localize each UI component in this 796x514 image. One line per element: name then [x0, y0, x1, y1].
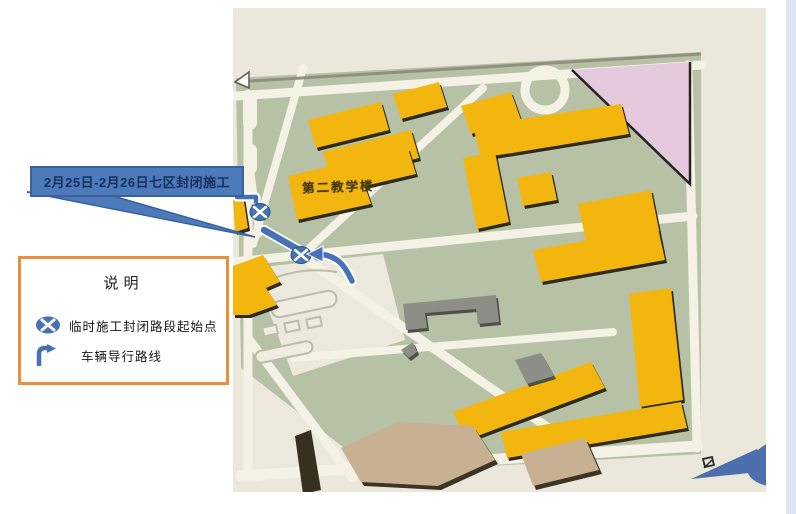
legend-item-closure-point: 临时施工封闭路段起始点 [35, 315, 226, 335]
callout-text: 2月25日-2月26日七区封闭施工 [44, 172, 230, 191]
campus-map [233, 8, 707, 492]
diversion-route-icon [35, 344, 57, 366]
page-fold [766, 0, 786, 514]
legend-item-label: 临时施工封闭路段起始点 [69, 316, 218, 335]
screenshot-stage: 第二教学楼 [0, 0, 796, 514]
legend-item-label: 车辆导行路线 [81, 346, 162, 365]
construction-callout: 2月25日-2月26日七区封闭施工 [30, 166, 244, 197]
legend-item-diversion-route: 车辆导行路线 [35, 344, 226, 366]
legend-title: 说明 [21, 272, 226, 293]
building-label-second-teaching: 第二教学楼 [302, 174, 399, 196]
map-photo [233, 8, 767, 492]
callout-pointer [27, 192, 255, 237]
closure-point-icon [35, 315, 61, 335]
legend: 说明 临时施工封闭路段起始点 车辆导行路线 [18, 256, 229, 385]
page-edge-strip [786, 0, 796, 514]
